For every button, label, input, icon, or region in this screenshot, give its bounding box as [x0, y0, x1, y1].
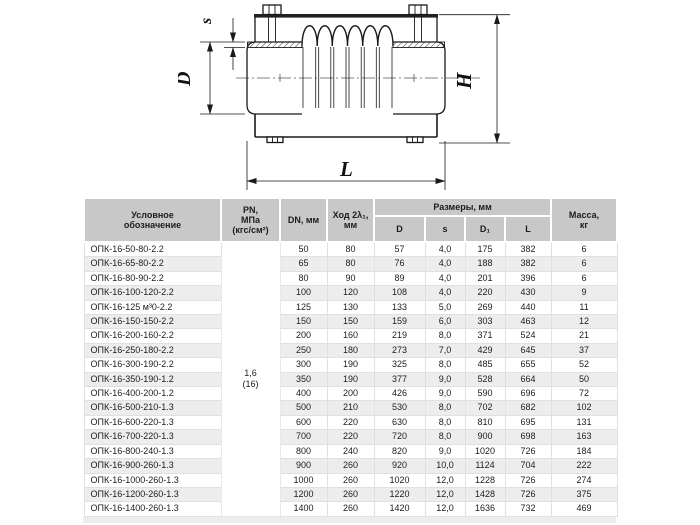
stroke-cell: 190	[327, 358, 374, 372]
dn-cell: 100	[280, 286, 327, 300]
stroke-cell: 190	[327, 372, 374, 386]
l-cell: 440	[505, 300, 551, 314]
d-cell: 108	[374, 286, 425, 300]
bottom-bolt-right	[407, 137, 423, 143]
mass-cell: 469	[551, 502, 617, 516]
designation-cell: ОПК-16-500-210-1.3	[84, 401, 221, 415]
d1-cell: 175	[465, 242, 505, 257]
dn-cell: 1000	[280, 473, 327, 487]
stroke-cell: 180	[327, 343, 374, 357]
l-cell: 696	[505, 387, 551, 401]
header-dn: DN, мм	[280, 198, 327, 242]
stroke-cell: 260	[327, 502, 374, 516]
mass-cell: 102	[551, 401, 617, 415]
l-cell: 430	[505, 286, 551, 300]
stroke-cell: 220	[327, 415, 374, 429]
mass-cell: 6	[551, 242, 617, 257]
dn-cell: 50	[280, 242, 327, 257]
table-row: ОПК-16-500-210-1.35002105308,0702682102	[84, 401, 617, 415]
l-cell: 382	[505, 242, 551, 257]
header-size-l: L	[505, 216, 551, 242]
l-cell: 726	[505, 487, 551, 501]
d-cell: 377	[374, 372, 425, 386]
s-cell: 12,0	[425, 473, 465, 487]
l-cell: 524	[505, 329, 551, 343]
s-cell: 9,0	[425, 444, 465, 458]
s-cell: 9,0	[425, 387, 465, 401]
stroke-cell: 90	[327, 271, 374, 285]
d1-cell: 201	[465, 271, 505, 285]
designation-cell: ОПК-16-800-240-1.3	[84, 444, 221, 458]
mass-cell: 222	[551, 459, 617, 473]
designation-cell: ОПК-16-1000-260-1.3	[84, 473, 221, 487]
designation-cell: ОПК-16-600-220-1.3	[84, 415, 221, 429]
header-size-d1: D₁	[465, 216, 505, 242]
spec-table: Условное обозначение PN, МПа (кгс/см²) D…	[83, 197, 618, 517]
header-size-d: D	[374, 216, 425, 242]
d-cell: 159	[374, 315, 425, 329]
s-cell: 4,0	[425, 286, 465, 300]
s-cell: 10,0	[425, 459, 465, 473]
designation-cell: ОПК-16-100-120-2.2	[84, 286, 221, 300]
dn-cell: 900	[280, 459, 327, 473]
d1-cell: 528	[465, 372, 505, 386]
mass-cell: 37	[551, 343, 617, 357]
s-cell: 4,0	[425, 242, 465, 257]
header-size-s: s	[425, 216, 465, 242]
dn-cell: 150	[280, 315, 327, 329]
dn-cell: 300	[280, 358, 327, 372]
l-cell: 463	[505, 315, 551, 329]
dn-cell: 500	[280, 401, 327, 415]
header-pn: PN, МПа (кгс/см²)	[221, 198, 280, 242]
stroke-cell: 260	[327, 487, 374, 501]
dn-cell: 800	[280, 444, 327, 458]
table-row: ОПК-16-600-220-1.36002206308,0810695131	[84, 415, 617, 429]
d-cell: 89	[374, 271, 425, 285]
d1-cell: 900	[465, 430, 505, 444]
spec-table-header: Условное обозначение PN, МПа (кгс/см²) D…	[84, 198, 617, 242]
technical-drawing: s D H L	[178, 0, 518, 196]
d-cell: 273	[374, 343, 425, 357]
mass-cell: 274	[551, 473, 617, 487]
s-cell: 8,0	[425, 401, 465, 415]
mass-cell: 12	[551, 315, 617, 329]
dim-label-L: L	[339, 157, 353, 181]
s-cell: 12,0	[425, 502, 465, 516]
stroke-cell: 200	[327, 387, 374, 401]
stroke-cell: 210	[327, 401, 374, 415]
mass-cell: 375	[551, 487, 617, 501]
s-cell: 4,0	[425, 257, 465, 271]
table-row: ОПК-16-250-180-2.22501802737,042964537	[84, 343, 617, 357]
mass-cell: 21	[551, 329, 617, 343]
l-cell: 655	[505, 358, 551, 372]
table-row: ОПК-16-400-200-1.24002004269,059069672	[84, 387, 617, 401]
table-row: ОПК-16-800-240-1.38002408209,01020726184	[84, 444, 617, 458]
designation-cell: ОПК-16-200-160-2.2	[84, 329, 221, 343]
top-bolt-right	[409, 5, 427, 42]
d1-cell: 269	[465, 300, 505, 314]
dn-cell: 200	[280, 329, 327, 343]
designation-cell: ОПК-16-150-150-2.2	[84, 315, 221, 329]
designation-cell: ОПК-16-700-220-1.3	[84, 430, 221, 444]
d1-cell: 590	[465, 387, 505, 401]
d-cell: 219	[374, 329, 425, 343]
dim-label-s: s	[198, 18, 215, 25]
d1-cell: 485	[465, 358, 505, 372]
table-row: ОПК-16-1000-260-1.31000260102012,0122872…	[84, 473, 617, 487]
s-cell: 8,0	[425, 329, 465, 343]
d1-cell: 1020	[465, 444, 505, 458]
stroke-cell: 160	[327, 329, 374, 343]
mass-cell: 6	[551, 271, 617, 285]
d1-cell: 371	[465, 329, 505, 343]
d-cell: 820	[374, 444, 425, 458]
d-cell: 57	[374, 242, 425, 257]
l-cell: 698	[505, 430, 551, 444]
l-cell: 396	[505, 271, 551, 285]
stroke-cell: 80	[327, 242, 374, 257]
designation-cell: ОПК-16-80-90-2.2	[84, 271, 221, 285]
designation-cell: ОПК-16-1400-260-1.3	[84, 502, 221, 516]
l-cell: 682	[505, 401, 551, 415]
table-row: ОПК-16-150-150-2.21501501596,030346312	[84, 315, 617, 329]
mass-cell: 52	[551, 358, 617, 372]
s-cell: 12,0	[425, 487, 465, 501]
l-cell: 382	[505, 257, 551, 271]
d-cell: 720	[374, 430, 425, 444]
table-row: ОПК-16-700-220-1.37002207208,0900698163	[84, 430, 617, 444]
stroke-cell: 150	[327, 315, 374, 329]
l-cell: 664	[505, 372, 551, 386]
dimension-s	[224, 18, 245, 70]
l-cell: 726	[505, 444, 551, 458]
dim-label-D: D	[178, 72, 195, 87]
mass-cell: 6	[551, 257, 617, 271]
stroke-cell: 260	[327, 473, 374, 487]
catalog-page: s D H L Условное обозначение PN, МПа (кг…	[0, 0, 700, 525]
stroke-cell: 240	[327, 444, 374, 458]
d1-cell: 429	[465, 343, 505, 357]
table-row: ОПК-16-80-90-2.28090894,02013966	[84, 271, 617, 285]
top-bolt-left	[263, 5, 281, 42]
mass-cell: 163	[551, 430, 617, 444]
bellows	[302, 26, 393, 108]
stroke-cell: 260	[327, 459, 374, 473]
mass-cell: 184	[551, 444, 617, 458]
d1-cell: 702	[465, 401, 505, 415]
s-cell: 8,0	[425, 358, 465, 372]
s-cell: 4,0	[425, 271, 465, 285]
l-cell: 695	[505, 415, 551, 429]
stroke-cell: 120	[327, 286, 374, 300]
pn-value-cell: 1,6 (16)	[221, 242, 280, 516]
mass-cell: 72	[551, 387, 617, 401]
l-cell: 732	[505, 502, 551, 516]
dn-cell: 65	[280, 257, 327, 271]
d-cell: 325	[374, 358, 425, 372]
dn-cell: 600	[280, 415, 327, 429]
designation-cell: ОПК-16-400-200-1.2	[84, 387, 221, 401]
cutoff-row	[83, 517, 616, 523]
d-cell: 76	[374, 257, 425, 271]
s-cell: 9,0	[425, 372, 465, 386]
mass-cell: 9	[551, 286, 617, 300]
header-designation: Условное обозначение	[84, 198, 221, 242]
designation-cell: ОПК-16-350-190-1.2	[84, 372, 221, 386]
dn-cell: 250	[280, 343, 327, 357]
s-cell: 8,0	[425, 430, 465, 444]
dn-cell: 350	[280, 372, 327, 386]
d-cell: 920	[374, 459, 425, 473]
spec-table-body: ОПК-16-50-80-2.21,6 (16)5080574,01753826…	[84, 242, 617, 516]
dn-cell: 400	[280, 387, 327, 401]
designation-cell: ОПК-16-65-80-2.2	[84, 257, 221, 271]
table-row: ОПК-16-900-260-1.390026092010,0112470422…	[84, 459, 617, 473]
mass-cell: 131	[551, 415, 617, 429]
d1-cell: 810	[465, 415, 505, 429]
mass-cell: 11	[551, 300, 617, 314]
designation-cell: ОПК-16-50-80-2.2	[84, 242, 221, 257]
mass-cell: 50	[551, 372, 617, 386]
dn-cell: 1200	[280, 487, 327, 501]
bottom-bolt-left	[267, 137, 283, 143]
table-row: ОПК-16-125 м³0-2.21251301335,026944011	[84, 300, 617, 314]
d-cell: 630	[374, 415, 425, 429]
stroke-cell: 130	[327, 300, 374, 314]
designation-cell: ОПК-16-1200-260-1.3	[84, 487, 221, 501]
table-row: ОПК-16-350-190-1.23501903779,052866450	[84, 372, 617, 386]
d1-cell: 1228	[465, 473, 505, 487]
l-cell: 726	[505, 473, 551, 487]
table-row: ОПК-16-200-160-2.22001602198,037152421	[84, 329, 617, 343]
dn-cell: 1400	[280, 502, 327, 516]
dn-cell: 125	[280, 300, 327, 314]
d1-cell: 1428	[465, 487, 505, 501]
d-cell: 426	[374, 387, 425, 401]
s-cell: 8,0	[425, 415, 465, 429]
table-row: ОПК-16-65-80-2.26580764,01883826	[84, 257, 617, 271]
stroke-cell: 80	[327, 257, 374, 271]
d1-cell: 220	[465, 286, 505, 300]
d-cell: 1220	[374, 487, 425, 501]
s-cell: 6,0	[425, 315, 465, 329]
table-row: ОПК-16-1400-260-1.31400260142012,0163673…	[84, 502, 617, 516]
designation-cell: ОПК-16-300-190-2.2	[84, 358, 221, 372]
d1-cell: 1124	[465, 459, 505, 473]
table-row: ОПК-16-300-190-2.23001903258,048565552	[84, 358, 617, 372]
l-cell: 645	[505, 343, 551, 357]
designation-cell: ОПК-16-250-180-2.2	[84, 343, 221, 357]
d1-cell: 188	[465, 257, 505, 271]
dim-label-H: H	[452, 72, 476, 90]
header-stroke: Ход 2λ₁, мм	[327, 198, 374, 242]
s-cell: 7,0	[425, 343, 465, 357]
dn-cell: 700	[280, 430, 327, 444]
designation-cell: ОПК-16-125 м³0-2.2	[84, 300, 221, 314]
dn-cell: 80	[280, 271, 327, 285]
header-mass: Масса, кг	[551, 198, 617, 242]
designation-cell: ОПК-16-900-260-1.3	[84, 459, 221, 473]
l-cell: 704	[505, 459, 551, 473]
d-cell: 1420	[374, 502, 425, 516]
stroke-cell: 220	[327, 430, 374, 444]
table-row: ОПК-16-100-120-2.21001201084,02204309	[84, 286, 617, 300]
table-row: ОПК-16-50-80-2.21,6 (16)5080574,01753826	[84, 242, 617, 257]
d-cell: 1020	[374, 473, 425, 487]
table-row: ОПК-16-1200-260-1.31200260122012,0142872…	[84, 487, 617, 501]
d1-cell: 1636	[465, 502, 505, 516]
d-cell: 530	[374, 401, 425, 415]
s-cell: 5,0	[425, 300, 465, 314]
header-sizes-group: Размеры, мм	[374, 198, 551, 216]
d-cell: 133	[374, 300, 425, 314]
d1-cell: 303	[465, 315, 505, 329]
